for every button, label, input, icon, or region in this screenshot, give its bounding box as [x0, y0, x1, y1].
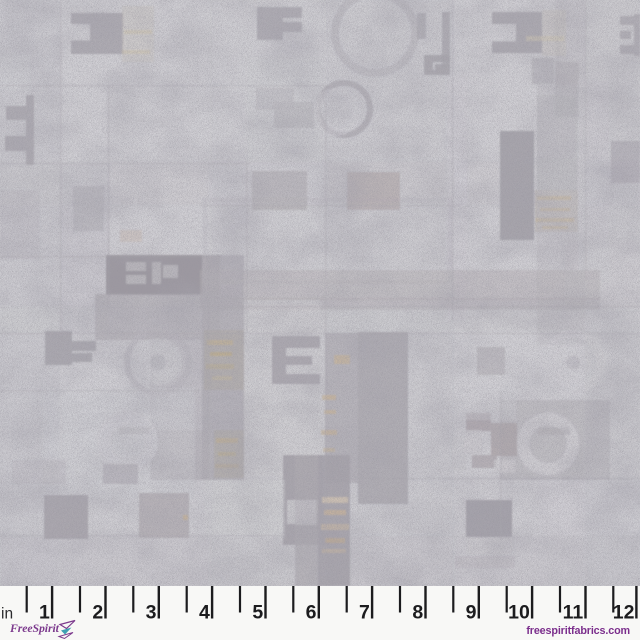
- svg-text:6: 6: [306, 602, 317, 624]
- svg-text:3: 3: [146, 602, 157, 624]
- svg-text:in: in: [1, 606, 13, 623]
- svg-text:2: 2: [92, 602, 103, 624]
- svg-text:8: 8: [412, 602, 423, 624]
- svg-text:11: 11: [563, 602, 584, 624]
- svg-text:5: 5: [252, 602, 263, 624]
- svg-text:7: 7: [359, 602, 370, 624]
- svg-text:FreeSpirit: FreeSpirit: [9, 621, 60, 635]
- svg-text:12: 12: [613, 602, 635, 624]
- svg-text:freespiritfabrics.com: freespiritfabrics.com: [526, 625, 630, 637]
- svg-text:10: 10: [508, 602, 530, 624]
- svg-text:4: 4: [199, 602, 210, 624]
- svg-text:9: 9: [466, 602, 477, 624]
